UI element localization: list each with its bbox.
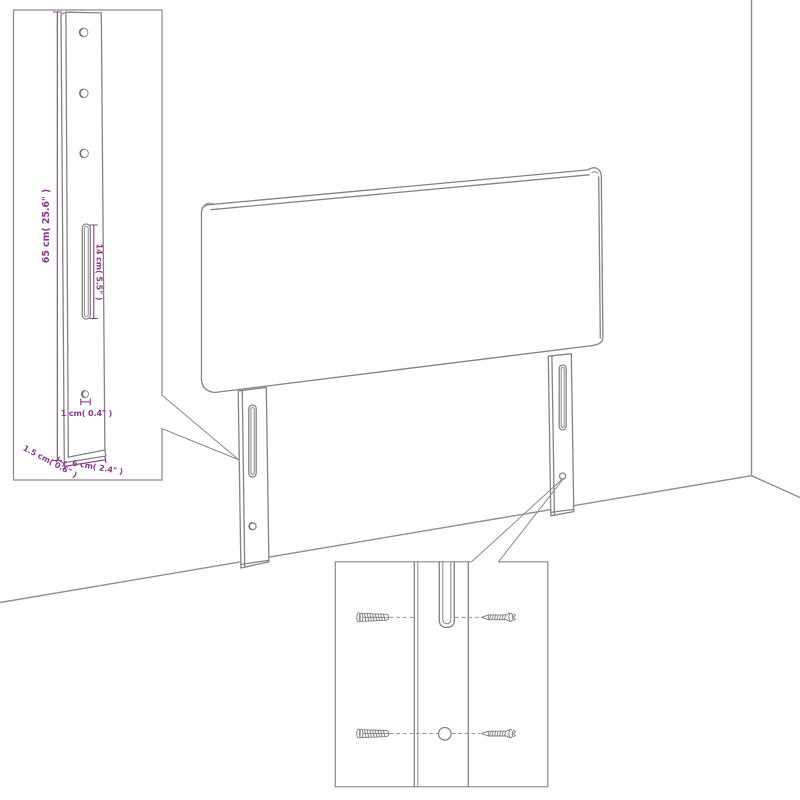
headboard-left-leg: [238, 388, 269, 569]
left-leg-slot: [249, 405, 256, 477]
right-leg-hole: [560, 473, 566, 479]
dimension-label-height: 65 cm( 25.6" ): [41, 189, 52, 263]
headboard-assembly-diagram: 65 cm( 25.6" ) 14 cm( 5.5" ) 1 cm( 0.4" …: [0, 0, 800, 800]
headboard-panel: [202, 168, 603, 393]
dimension-label-slot: 14 cm( 5.5" ): [95, 244, 104, 301]
diagram-canvas: 65 cm( 25.6" ) 14 cm( 5.5" ) 1 cm( 0.4" …: [0, 0, 800, 800]
detail-inset-wall-mounting: [335, 562, 548, 787]
dimension-label-hole: 1 cm( 0.4" ): [61, 409, 112, 418]
callout-leader-lines-left: [162, 395, 239, 459]
closeup-hole: [439, 728, 452, 741]
right-leg-slot: [559, 365, 566, 430]
leg-slot-front: [82, 224, 90, 319]
headboard-right-leg: [548, 354, 574, 516]
floor-line-right: [752, 476, 800, 498]
leg-front-view: [61, 12, 106, 462]
detail-inset-leg-dimensions: 65 cm( 25.6" ) 14 cm( 5.5" ) 1 cm( 0.4" …: [14, 10, 163, 480]
